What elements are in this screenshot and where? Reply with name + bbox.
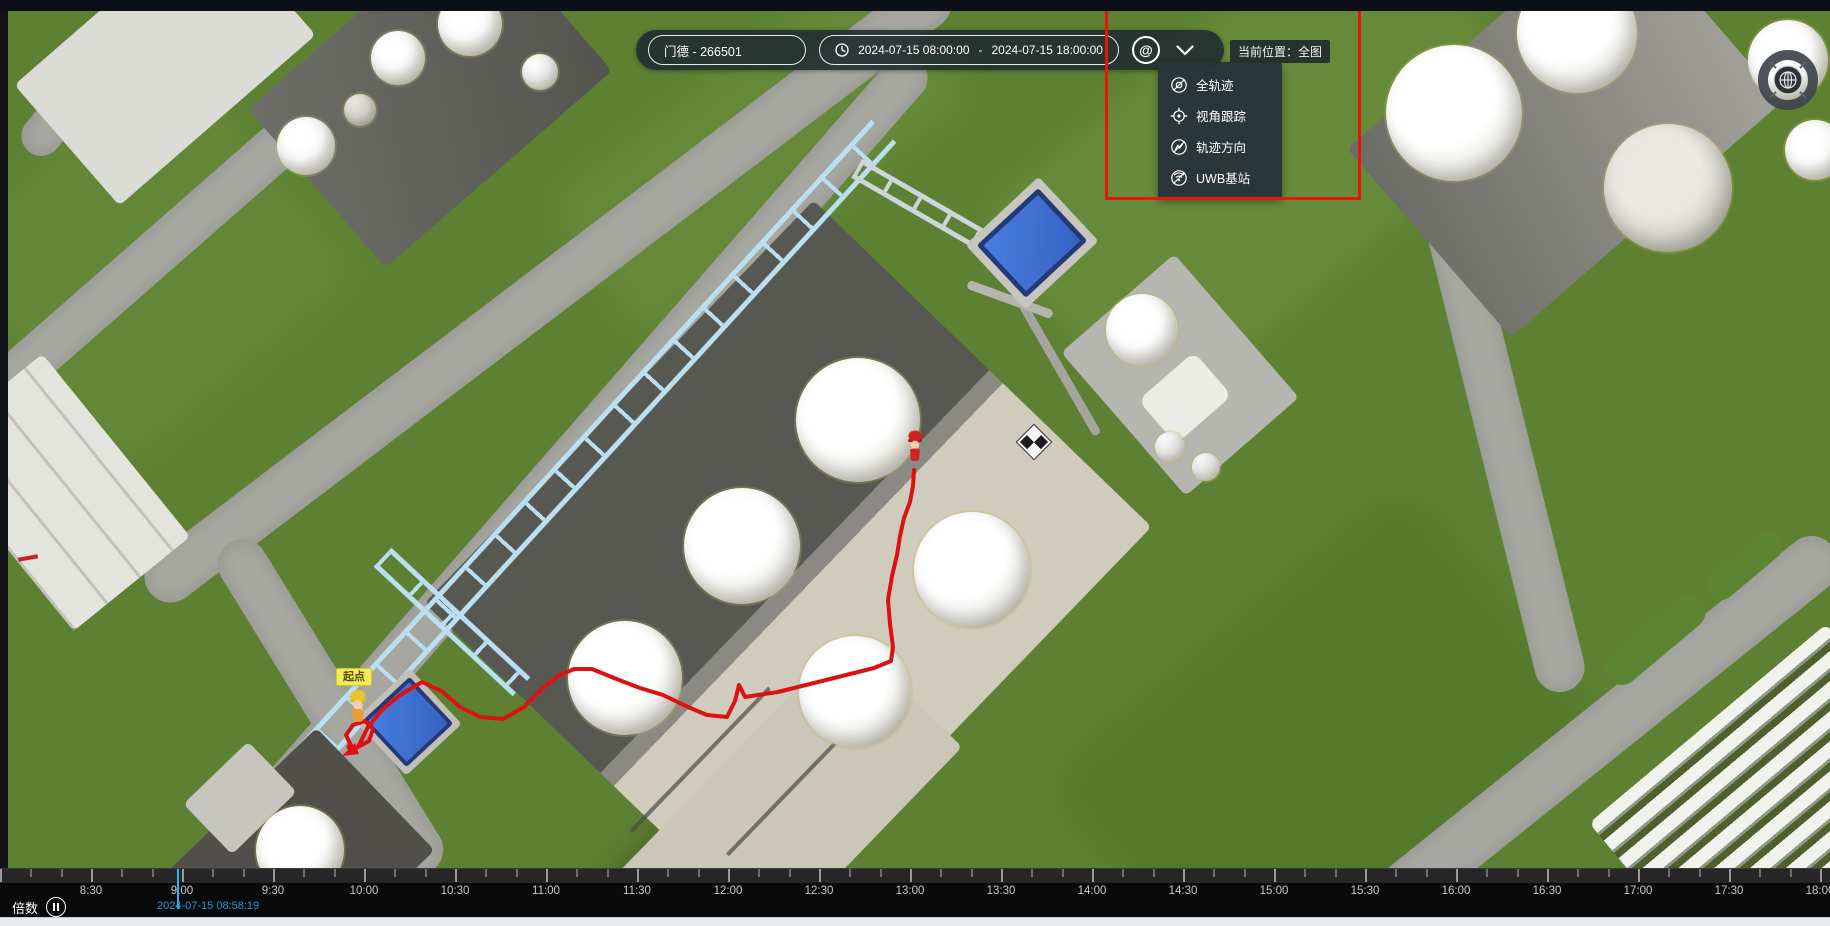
trajectory-direction-icon bbox=[1170, 138, 1188, 156]
person-selector[interactable]: 门德 - 266501 bbox=[648, 35, 806, 65]
start-point-badge: 起点 bbox=[336, 668, 372, 686]
menu-item-uwb-station[interactable]: UWB基站 bbox=[1158, 162, 1282, 193]
time-start-value: 2024-07-15 08:00:00 bbox=[858, 43, 969, 57]
menu-item-label: 轨迹方向 bbox=[1196, 137, 1246, 156]
menu-item-label: 视角跟踪 bbox=[1196, 106, 1246, 125]
small-sphere-tank bbox=[1192, 453, 1220, 481]
sphere-tank bbox=[914, 512, 1030, 628]
storage-tank bbox=[371, 31, 425, 85]
at-target-icon: @ bbox=[1139, 42, 1153, 58]
layer-menu-button[interactable] bbox=[1173, 38, 1197, 62]
storage-tank bbox=[1604, 124, 1732, 252]
current-location-badge: 当前位置：全图 bbox=[1230, 40, 1330, 63]
sphere-tank bbox=[799, 636, 911, 748]
time-separator: - bbox=[979, 43, 983, 57]
menu-item-label: 全轨迹 bbox=[1196, 75, 1234, 94]
pause-icon bbox=[57, 903, 59, 911]
layer-dropdown-menu: 全轨迹 视角跟踪 轨迹方向 bbox=[1158, 62, 1282, 200]
bottom-scrollbar-strip[interactable] bbox=[0, 917, 1830, 926]
sphere-tank bbox=[796, 358, 920, 482]
view-follow-icon bbox=[1170, 107, 1188, 125]
menu-item-label: UWB基站 bbox=[1196, 168, 1250, 187]
timeline-track[interactable]: 8:309:009:3010:0010:3011:0011:3012:0012:… bbox=[0, 868, 1830, 917]
person-selector-value: 门德 - 266501 bbox=[664, 41, 742, 60]
menu-item-trajectory-direction[interactable]: 轨迹方向 bbox=[1158, 131, 1282, 162]
top-window-strip bbox=[0, 0, 1830, 11]
sphere-tank bbox=[684, 488, 800, 604]
map-3d-view[interactable] bbox=[0, 0, 1830, 926]
compass-control[interactable]: N bbox=[1756, 30, 1820, 112]
chevron-down-icon bbox=[1176, 45, 1194, 56]
uwb-station-icon bbox=[1170, 169, 1188, 187]
menu-item-view-follow[interactable]: 视角跟踪 bbox=[1158, 100, 1282, 131]
left-window-strip bbox=[0, 0, 8, 926]
storage-tank bbox=[522, 54, 558, 90]
time-end-value: 2024-07-15 18:00:00 bbox=[992, 43, 1103, 57]
compass-north-label: N bbox=[1783, 34, 1792, 49]
locate-target-button[interactable]: @ bbox=[1132, 36, 1160, 64]
time-range-picker[interactable]: 2024-07-15 08:00:00 - 2024-07-15 18:00:0… bbox=[819, 35, 1119, 65]
storage-tank bbox=[344, 94, 376, 126]
storage-tank bbox=[1785, 120, 1830, 180]
pause-icon bbox=[53, 903, 55, 911]
timeline-cursor-time: 2024-07-15 08:58:19 bbox=[157, 900, 259, 912]
storage-tank bbox=[1386, 45, 1522, 181]
pause-button[interactable] bbox=[46, 897, 66, 917]
dome-building bbox=[1106, 294, 1178, 366]
full-trajectory-icon bbox=[1170, 76, 1188, 94]
storage-tank bbox=[277, 117, 335, 175]
small-sphere-tank bbox=[1155, 432, 1185, 462]
globe-icon bbox=[1780, 72, 1796, 88]
playback-controls: 倍数 bbox=[12, 897, 66, 917]
menu-item-full-trajectory[interactable]: 全轨迹 bbox=[1158, 69, 1282, 100]
speed-label: 倍数 bbox=[12, 898, 38, 917]
app-window: 起点 门德 - 266501 2024-07-15 08:00:00 - 202… bbox=[0, 0, 1830, 926]
sphere-tank bbox=[568, 621, 682, 735]
top-toolbar: 门德 - 266501 2024-07-15 08:00:00 - 2024-0… bbox=[636, 30, 1224, 70]
clock-icon bbox=[835, 43, 849, 57]
